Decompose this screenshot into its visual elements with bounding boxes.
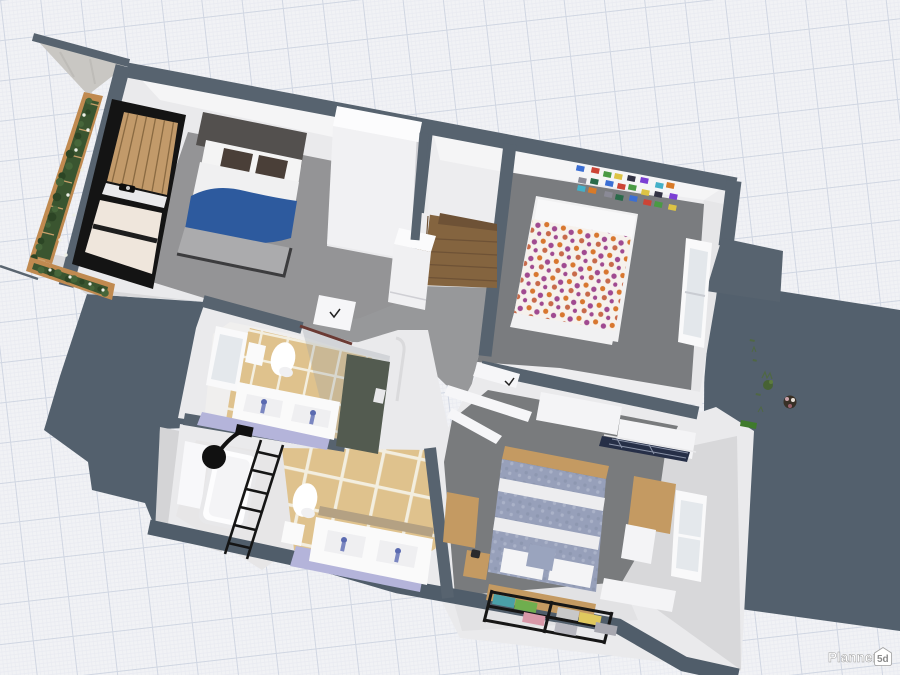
svg-text:5d: 5d — [877, 654, 889, 665]
svg-text:Planner: Planner — [828, 650, 878, 665]
